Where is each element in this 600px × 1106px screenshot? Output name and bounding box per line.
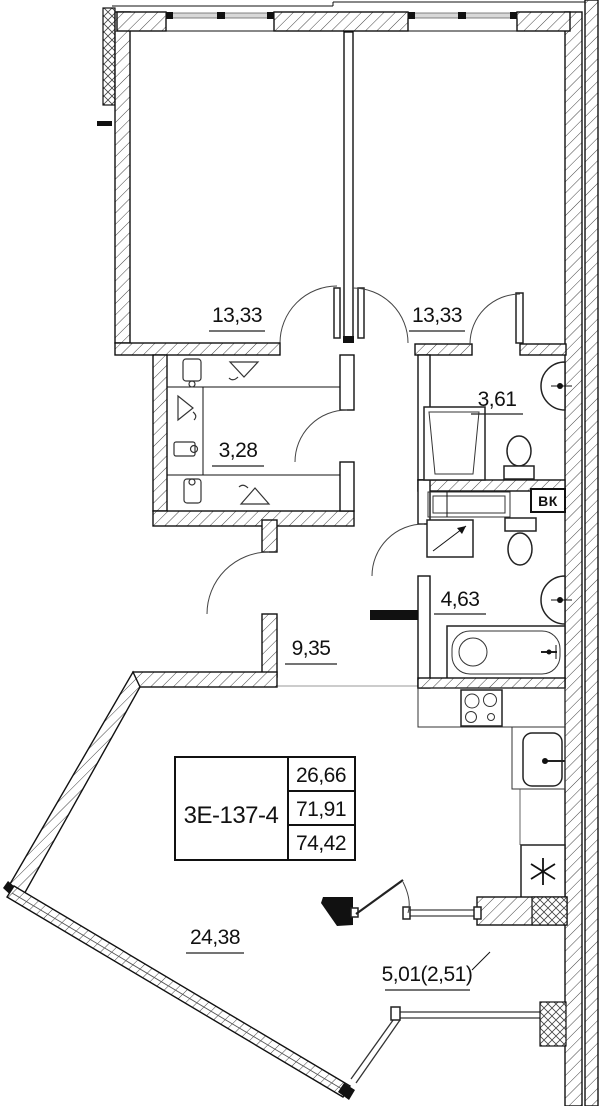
refrigerator (521, 845, 565, 898)
bath-left-wall (418, 576, 430, 688)
right-outer-wall (585, 0, 598, 1106)
balcony-window (403, 907, 481, 919)
living-room-label: 24,38 (186, 926, 244, 953)
balcony-glazing-line (12, 893, 347, 1092)
wall-stub (370, 610, 418, 620)
toilet-tank (504, 466, 534, 479)
door-leaf (358, 288, 364, 338)
right-inner-wall (565, 12, 582, 1106)
door-arc (372, 524, 424, 576)
room-area-label: 3,28 (219, 439, 258, 462)
bathroom-main: 4,63 (372, 518, 572, 688)
balcony-door (351, 880, 409, 917)
room-area-label: 24,38 (190, 926, 240, 949)
hall-wall (262, 520, 277, 552)
window-frame-tick (267, 12, 274, 19)
stove (461, 690, 502, 726)
kitchen-zone (418, 678, 565, 898)
balcony-corner-pier (540, 1002, 566, 1046)
glazing-post (391, 1007, 400, 1020)
wall-segment (115, 343, 280, 355)
partition-end-cap (343, 336, 354, 343)
window-bedroom-right (408, 12, 517, 19)
top-wall-pier-left (117, 12, 166, 31)
wall-segment (415, 344, 472, 355)
toilet-bowl (508, 533, 532, 565)
window-frame-tick (166, 12, 173, 19)
hallway-room: 9,35 (207, 520, 418, 686)
bathroom-ensuite-label: 3,61 (471, 388, 523, 414)
wardrobe-left-wall (153, 355, 167, 511)
living-bottom-wall-pier (532, 897, 567, 925)
hanger-icon (229, 362, 258, 380)
washing-machine (427, 520, 473, 557)
total-area-value: 74,42 (296, 832, 346, 855)
hanger-side-icon (178, 396, 196, 420)
kitchen-sink (523, 733, 565, 786)
tag-icon (174, 442, 195, 456)
wardrobe-room: 3,28 (153, 355, 354, 526)
tag-icon (191, 446, 198, 453)
wardrobe-label: 3,28 (212, 439, 264, 466)
room-area-label: 13,33 (412, 304, 462, 327)
storage-box-icon (189, 381, 195, 387)
hanger-icon (239, 485, 269, 504)
storage-box-icon (184, 479, 201, 503)
door-leaf (516, 293, 523, 343)
room-area-label: 4,63 (441, 588, 480, 611)
storage-box-icon (189, 479, 195, 485)
wardrobe-right-wall (340, 462, 354, 511)
window-frame-tick (458, 12, 466, 19)
room-area-label: 9,35 (292, 637, 331, 660)
bathtub-tap (547, 650, 552, 655)
toilet-tank (505, 518, 536, 531)
door-arc (280, 286, 337, 343)
door-leaf (356, 880, 403, 914)
window-frame-tick (408, 12, 415, 19)
living-top-wall (133, 672, 277, 687)
door-arc (470, 294, 520, 344)
bedroom-partition (280, 32, 408, 343)
window-post (474, 907, 481, 919)
living-area-value: 26,66 (296, 764, 346, 787)
left-wall-tick (97, 121, 112, 126)
left-shaft-wall (103, 8, 115, 105)
wall-segment (520, 344, 566, 355)
duct-label: ВК (538, 493, 558, 509)
label-leader-line (472, 952, 490, 970)
hallway-label: 9,35 (285, 637, 337, 664)
floor-plan: 3,28 9,35 3,61 (0, 0, 600, 1106)
kitchen-top-wall (418, 678, 565, 688)
wardrobe-right-wall (340, 355, 354, 410)
apartment-area-value: 71,91 (296, 798, 346, 821)
window-frame-tick (217, 12, 225, 19)
partition-wall (344, 32, 353, 338)
left-exterior-wall (115, 12, 130, 343)
hall-wall (262, 614, 277, 677)
room-area-label: 13,33 (212, 304, 262, 327)
wall-corner-cap (321, 897, 353, 926)
wardrobe-bottom-wall (153, 511, 354, 526)
bedroom-left-label: 13,33 (209, 304, 265, 331)
bathtub (447, 626, 565, 679)
room-area-label: 5,01(2,51) (382, 963, 473, 986)
window-frame-tick (510, 12, 517, 19)
balcony-glazing-diagonal (351, 1016, 396, 1079)
storage-box-icon (183, 359, 201, 381)
washbasin-tap (557, 597, 563, 603)
wardrobe-icons (174, 359, 269, 504)
top-wall-pier-middle (274, 12, 408, 31)
bathroom-main-label: 4,63 (434, 588, 486, 614)
sink-tap (542, 758, 548, 764)
balcony-glazing-diagonal (356, 1020, 400, 1083)
window-bedroom-left (166, 12, 274, 19)
balcony-label: 5,01(2,51) (382, 952, 490, 990)
room-area-label: 3,61 (478, 388, 517, 411)
unit-info-box: 3Е-137-4 26,66 71,91 74,42 (175, 757, 355, 860)
entrance-door-arc (207, 552, 269, 614)
duct-zone: ВК (428, 489, 565, 517)
door-leaf (334, 288, 340, 338)
toilet-bowl (507, 436, 531, 466)
washbasin-tap (557, 383, 563, 389)
bedroom-right-label: 13,33 (409, 304, 465, 331)
door-arc (295, 410, 347, 462)
living-west-diagonal-wall (10, 672, 140, 896)
top-wall-pier-right (517, 12, 570, 31)
unit-code: 3Е-137-4 (184, 802, 279, 829)
cabinet-inner (433, 496, 505, 513)
